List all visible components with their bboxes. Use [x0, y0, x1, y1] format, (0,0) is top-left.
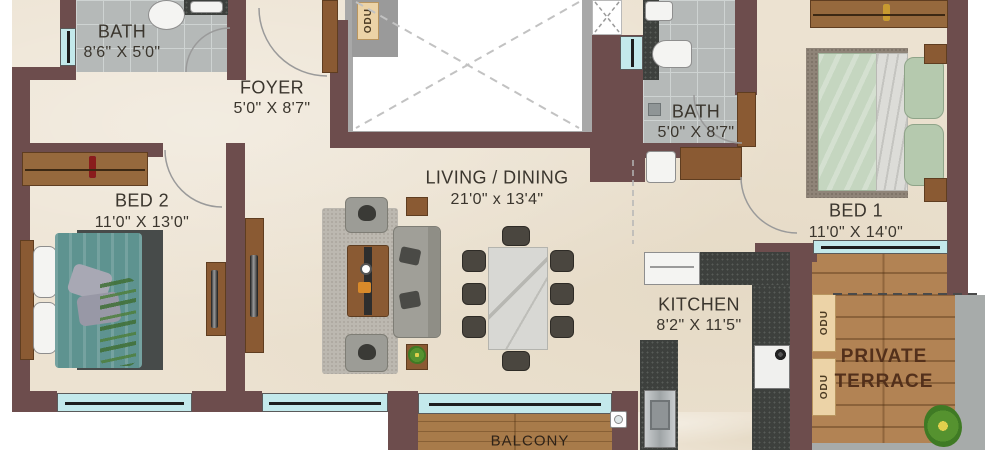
bath1-wc — [148, 0, 185, 30]
bed2-wardrobe — [22, 152, 148, 186]
bath2-door-leaf — [737, 92, 756, 147]
bath1-window — [60, 28, 76, 66]
stove — [754, 345, 790, 389]
bath1-sink — [190, 1, 223, 13]
coffee-cup — [360, 263, 372, 275]
dining-chair — [550, 316, 574, 338]
balcony-name: BALCONY — [491, 433, 570, 450]
wall-bath1-bottom — [12, 67, 76, 80]
dining-chair — [462, 250, 486, 272]
wall-bed2-right — [226, 143, 245, 393]
wall-bath1-left-top — [60, 0, 76, 30]
foyer-name: FOYER — [240, 78, 304, 99]
bed2-pillow-2 — [33, 302, 57, 354]
main-door-leaf — [322, 0, 338, 73]
balcony-slider — [418, 393, 612, 414]
wall-right-outer — [947, 0, 968, 295]
fridge — [644, 252, 700, 285]
dining-chair — [502, 351, 530, 371]
bed2-pillow-1 — [33, 246, 57, 298]
kitchen-counter-top — [700, 252, 790, 285]
wall-bath1-right — [227, 0, 246, 80]
bath2-drain — [648, 103, 661, 116]
coffee-tray — [358, 282, 371, 293]
bed1-nightstand-top — [924, 44, 947, 64]
dining-chair — [462, 316, 486, 338]
wall-bottom-left-corner — [12, 391, 57, 412]
sofa-backrest — [428, 227, 440, 337]
bath1-name: BATH — [98, 22, 146, 43]
kitchen-sink-basin — [650, 400, 670, 430]
bed2-flowers — [100, 278, 136, 366]
odu-unit-terrace-2: ODU — [812, 358, 836, 416]
armchair-top-seat — [358, 205, 376, 221]
bath2-toilet — [652, 40, 692, 68]
wall-bottom-pier — [192, 391, 262, 412]
living-name: LIVING / DINING — [425, 168, 568, 189]
wall-kitchen-stub — [590, 147, 645, 182]
sofa-side-table — [406, 197, 428, 216]
bed1-blanket — [818, 53, 880, 191]
odu-label: ODU — [819, 310, 830, 335]
coffee-table-runner — [364, 247, 372, 315]
dining-chair — [550, 283, 574, 305]
utility-basin — [646, 151, 676, 183]
bed1-wardrobe — [810, 0, 948, 28]
dining-table — [488, 247, 548, 350]
floor-plan: ODU — [0, 0, 1000, 450]
terrace-edge — [812, 443, 985, 450]
bed2-window — [57, 393, 192, 412]
passage-threshold — [680, 147, 742, 180]
terrace-plant-icon — [924, 405, 962, 447]
armchair-bottom-seat — [358, 344, 376, 360]
bed2-name: BED 2 — [115, 191, 169, 212]
odu-unit-foyer: ODU — [357, 2, 379, 40]
balcony-drain-circle — [614, 415, 623, 424]
bed2-dims: 11'0" X 13'0" — [95, 214, 189, 232]
bed2-tv — [211, 270, 218, 328]
foyer-dims: 5'0" X 8'7" — [233, 100, 310, 118]
terrace-name-line1: PRIVATE — [841, 346, 928, 368]
odu-label: ODU — [363, 8, 374, 33]
bath2-window — [620, 36, 643, 70]
wall-kitchen-terrace — [790, 250, 812, 450]
living-tv — [250, 255, 258, 317]
bed1-terrace-window — [813, 240, 948, 254]
dining-chair — [502, 226, 530, 246]
dining-chair — [462, 283, 486, 305]
kitchen-name: KITCHEN — [658, 295, 740, 316]
wall-bath2-right — [735, 0, 757, 95]
living-window — [262, 393, 388, 412]
bath2-dims: 5'0" X 8'7" — [657, 124, 734, 142]
bed1-nightstand-bottom — [924, 178, 947, 202]
bath2-sink — [645, 1, 673, 21]
bed1-name: BED 1 — [829, 201, 883, 222]
bath2-name: BATH — [672, 102, 720, 123]
wall-duct-bottom — [330, 132, 600, 148]
fridge-handle — [650, 266, 694, 268]
bed2-headboard — [20, 240, 34, 360]
sofa-pillow-2 — [399, 290, 421, 309]
odu-label: ODU — [819, 374, 830, 399]
terrace-name-line2: TERRACE — [835, 371, 934, 393]
bed1-pillow-2 — [904, 124, 944, 186]
living-plant-icon — [408, 346, 426, 364]
bed1-dims: 11'0" X 14'0" — [809, 224, 903, 242]
wall-balcony-left — [388, 391, 418, 450]
bath1-dims: 8'6" X 5'0" — [83, 44, 160, 62]
odu-unit-terrace-1: ODU — [812, 294, 836, 352]
bed1-pillow-1 — [904, 57, 944, 119]
small-duct — [592, 0, 622, 35]
dining-chair — [550, 250, 574, 272]
living-dims: 21'0" x 13'4" — [451, 191, 544, 209]
kitchen-dims: 8'2" X 11'5" — [656, 317, 741, 335]
